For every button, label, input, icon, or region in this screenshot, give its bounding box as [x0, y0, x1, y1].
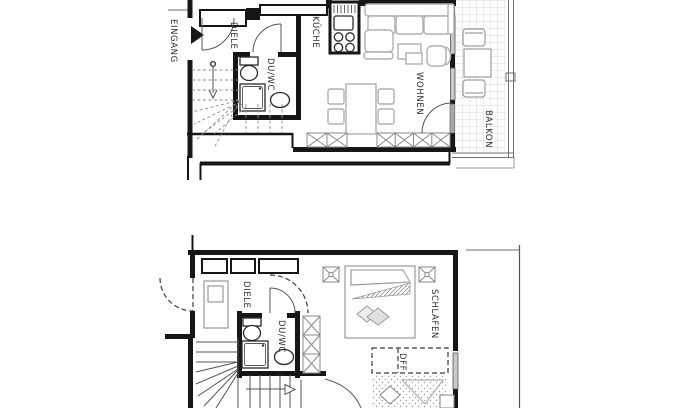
- dresser: [204, 281, 228, 328]
- roof-window-label: DFF: [397, 353, 407, 371]
- shower: [240, 84, 265, 111]
- kitchen-sink: [334, 16, 353, 30]
- toilet-bowl: [244, 326, 261, 341]
- lower-bath-label: DU/WC: [276, 320, 286, 353]
- upper-bath-label: DU/WC: [265, 58, 275, 91]
- toilet: [243, 318, 261, 326]
- lower-bath-door: [270, 275, 308, 313]
- wardrobe: [303, 316, 320, 373]
- bedroom-label: SCHLAFEN: [429, 289, 439, 339]
- armchair: [427, 46, 451, 66]
- upper-floor-plan: EINGANG DIELE DU/WC KÜCHE WOHNEN BALKON: [168, 0, 515, 180]
- toilet: [240, 57, 258, 65]
- bath-door: [253, 24, 281, 52]
- shower: [242, 341, 268, 368]
- upper-hall-label: DIELE: [228, 22, 238, 50]
- toilet-bowl: [241, 66, 258, 81]
- lower-floor-plan: DIELE DU/WC SCHLAFEN DFF: [160, 235, 520, 408]
- lower-hall-label: DIELE: [241, 281, 251, 309]
- nightstand: [419, 267, 435, 282]
- washbasin: [271, 93, 290, 108]
- balcony-label: BALKON: [483, 110, 493, 148]
- dining-set: [328, 84, 394, 134]
- kitchen-label: KÜCHE: [310, 16, 321, 48]
- study-area: [372, 375, 454, 408]
- entrance-label: EINGANG: [168, 19, 178, 63]
- balcony-door: [422, 103, 455, 133]
- kitchen-unit: [330, 2, 359, 53]
- projected-door: [160, 278, 193, 311]
- floor-plan-page: EINGANG DIELE DU/WC KÜCHE WOHNEN BALKON: [0, 0, 680, 408]
- nightstand: [323, 267, 339, 282]
- bed: [345, 266, 415, 338]
- radiators: [307, 133, 450, 147]
- floor-plan-svg: EINGANG DIELE DU/WC KÜCHE WOHNEN BALKON: [0, 0, 680, 408]
- coffee-table: [398, 44, 422, 64]
- living-label: WOHNEN: [414, 72, 424, 115]
- headroom-arc: [325, 379, 361, 408]
- roof-window-outline: [372, 348, 448, 373]
